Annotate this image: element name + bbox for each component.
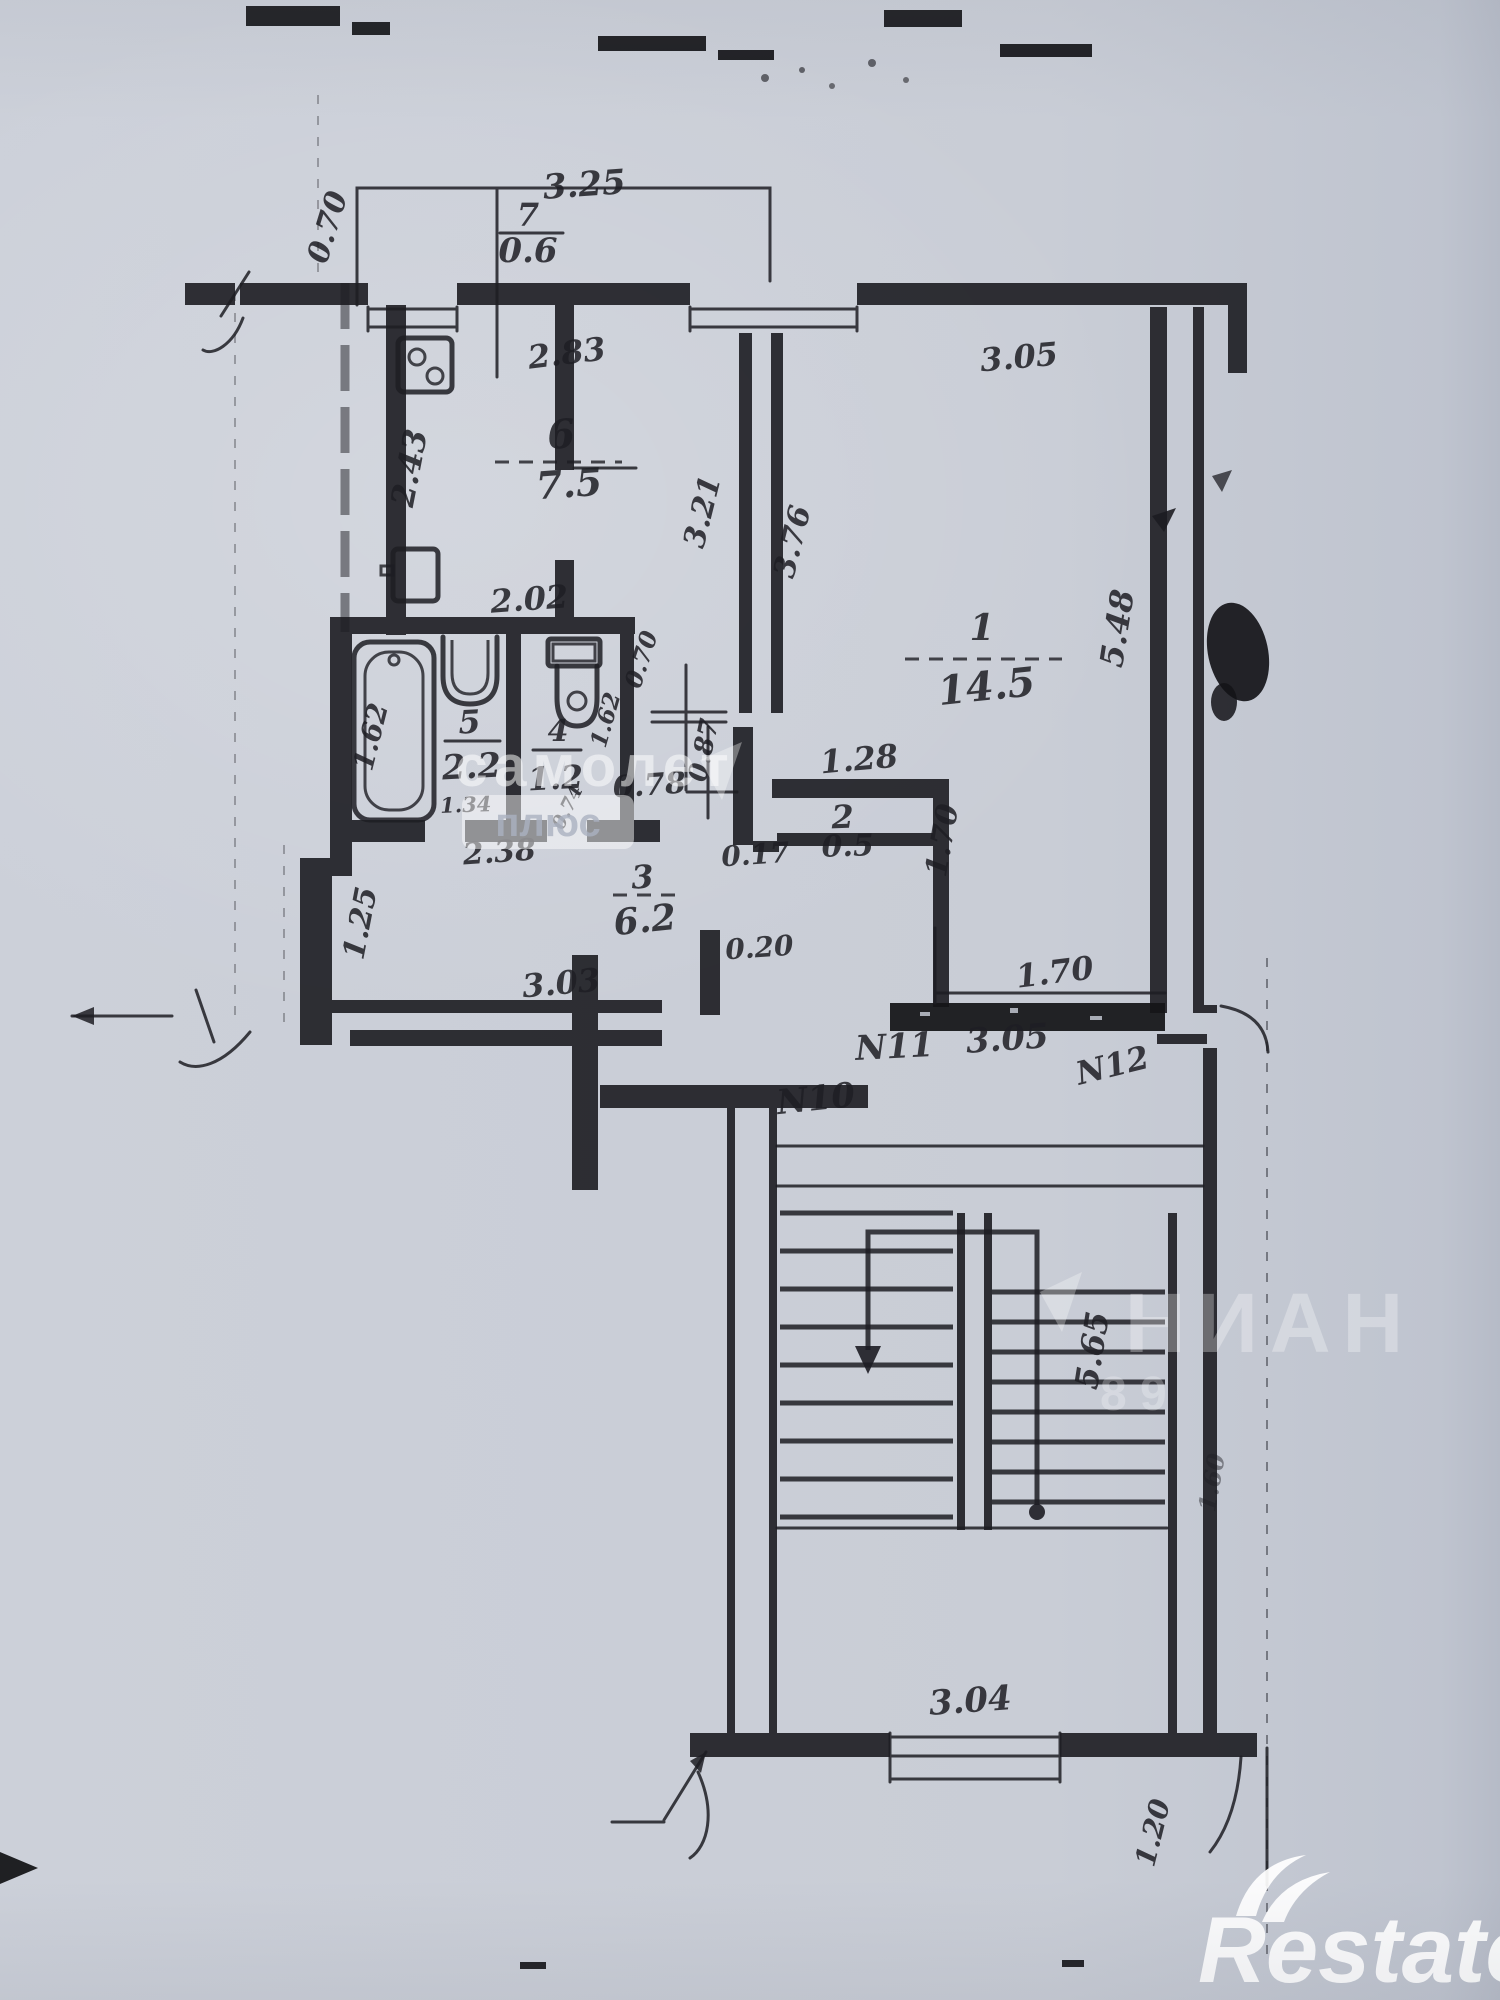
dim-closet-right: 1.70	[919, 801, 966, 879]
dim-room1-right: 5.48	[1092, 587, 1142, 670]
watermark-center: самолет плюс	[455, 734, 742, 849]
dim-balcony-depth: 0.70	[300, 187, 355, 267]
dim-hall-left: 1.25	[337, 884, 385, 962]
dim-closet-step: 0.17	[720, 836, 791, 874]
apartment-number-11: N11	[853, 1025, 934, 1069]
washbasin-icon	[443, 637, 497, 704]
room-label-hall-area: 6.2	[611, 896, 678, 944]
room-label-balcony-area: 0.6	[498, 231, 557, 271]
dim-hall-bottom: 3.03	[521, 961, 602, 1006]
stair-direction-arrowhead	[855, 1346, 881, 1374]
watermark-bottom-line1: НИАН	[1125, 1276, 1415, 1370]
stair-start-dot	[1029, 1504, 1045, 1520]
floor-plan-drawing: 3.25 0.70 7 0.6 2.83 6 7.5 2.43 2.02 3.2…	[0, 0, 1500, 2000]
dim-kitchen-window: 2.83	[525, 329, 608, 376]
watermark-bottom-line2: 8 9	[1100, 1368, 1167, 1421]
room-label-room1-num: 1	[969, 607, 994, 649]
brand-logo-text: Restate	[1198, 1897, 1500, 2000]
dim-stair-right: 1.60	[1192, 1451, 1231, 1514]
dim-landing-width: 3.05	[965, 1016, 1050, 1062]
dim-landing-door: 0.20	[724, 929, 795, 967]
watermark-center-line1: самолет	[455, 734, 734, 799]
room-label-hall-num: 3	[630, 857, 654, 896]
room-label-kitchen-num: 6	[546, 410, 577, 459]
stove-icon	[398, 338, 452, 392]
room-label-room1-area: 14.5	[936, 658, 1038, 715]
room-label-kitchen-area: 7.5	[535, 459, 604, 509]
toilet-icon	[548, 639, 600, 726]
apartment-number-10: N10	[774, 1075, 857, 1123]
scanned-floor-plan-page: 3.25 0.70 7 0.6 2.83 6 7.5 2.43 2.02 3.2…	[0, 0, 1500, 2000]
apartment-number-12: N12	[1071, 1038, 1153, 1093]
watermark-center-line2: плюс	[495, 801, 600, 845]
dim-balcony-width: 3.25	[542, 162, 627, 208]
dim-corridor-wall: 3.21	[677, 472, 729, 551]
dim-room1-top: 3.05	[979, 335, 1060, 380]
dim-stair-bottom: 3.04	[928, 1678, 1013, 1724]
room-label-closet-area: 0.5	[821, 828, 874, 865]
dim-closet-top: 1.28	[819, 737, 900, 782]
room-label-balcony-num: 7	[517, 196, 539, 234]
stair-direction-line	[868, 1232, 1037, 1505]
brand-logo: Restate	[1198, 1855, 1500, 2000]
dim-sill-width: 1.70	[1014, 948, 1096, 995]
dim-entry-side: 1.20	[1129, 1795, 1178, 1870]
dim-kitchen-width: 2.02	[488, 577, 569, 620]
ink-blot	[1198, 597, 1277, 707]
leader-arrowhead	[72, 1007, 94, 1025]
